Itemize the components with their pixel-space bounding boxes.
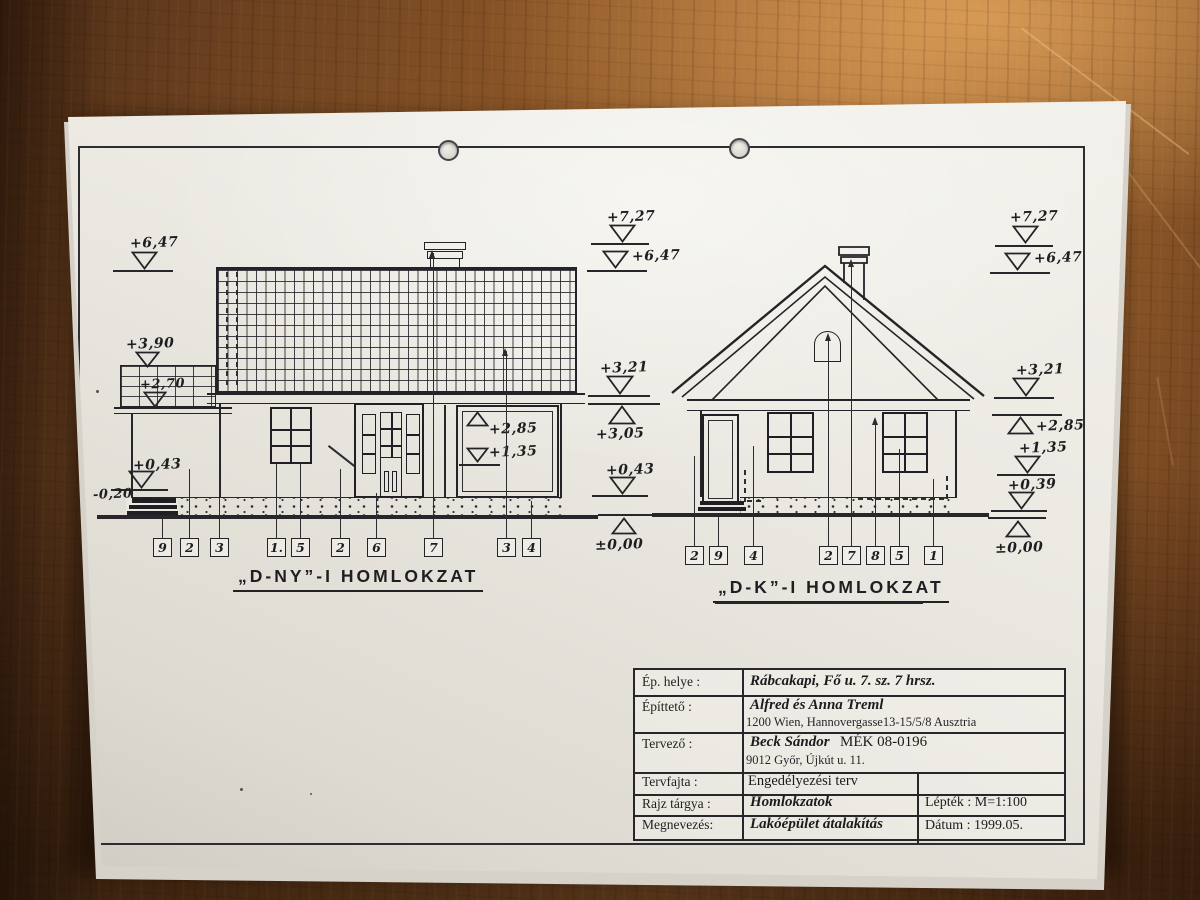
hidden-edge-line: [226, 272, 228, 389]
level-triangle-down-icon: [1012, 377, 1040, 397]
component-tag: 9: [153, 538, 172, 557]
title-underline: [715, 602, 923, 604]
component-tag: 7: [842, 546, 861, 565]
component-tag: 1.: [267, 538, 286, 557]
title-block-date: Dátum : 1999.05.: [925, 818, 1023, 834]
level-triangle-up-icon: [1007, 416, 1034, 435]
door-glazing-bar: [381, 457, 401, 459]
arrowhead: [825, 330, 831, 341]
level-value: +2,85: [489, 420, 538, 438]
sidelight-rail: [363, 434, 375, 436]
door-sidelight: [362, 414, 376, 474]
tag-number: 7: [847, 548, 856, 563]
level-line: [997, 474, 1055, 476]
title-block-registration: MÉK 08-0196: [840, 734, 927, 751]
tag-number: 5: [296, 540, 305, 555]
door-panel: [384, 471, 389, 492]
level-line: [588, 395, 650, 397]
level-triangle-up-icon: [466, 411, 489, 427]
door-glazing-bar: [381, 428, 401, 430]
title-block-value: Alfred és Anna Treml: [750, 697, 883, 714]
ground-line: [652, 513, 989, 517]
wall-joint-line: [444, 405, 446, 498]
step: [132, 499, 176, 503]
paper-speck: [240, 788, 243, 791]
level-triangle-down-icon: [609, 224, 636, 243]
punch-hole: [729, 138, 750, 159]
title-block-label: Tervfajta :: [642, 774, 698, 790]
title-block-address: 9012 Győr, Újkút u. 11.: [746, 753, 865, 768]
title-block-value: Engedélyezési terv: [748, 773, 858, 790]
level-line: [991, 510, 1047, 512]
entrance-door-assembly: [354, 403, 424, 498]
level-value: +6,47: [632, 247, 681, 265]
title-block-scale: Lépték : M=1:100: [925, 795, 1027, 811]
level-value: +2,85: [1036, 417, 1085, 435]
component-tag: 5: [890, 546, 909, 565]
left-elevation-tiled-roof: [216, 267, 577, 393]
tag-number: 1: [929, 548, 938, 563]
level-triangle-up-icon: [611, 517, 637, 535]
window-mullion: [904, 414, 906, 471]
tag-number: 2: [185, 540, 194, 555]
right-elevation-title: „D-K”-I HOMLOKZAT: [713, 577, 949, 603]
window-rail: [769, 453, 812, 455]
level-line: [592, 495, 648, 497]
paper-speck: [310, 793, 312, 795]
tag-number: 2: [824, 548, 833, 563]
window-mullion: [790, 414, 792, 471]
door-inner-frame: [708, 420, 733, 499]
sidelight-rail: [407, 453, 419, 455]
component-tag: 1: [924, 546, 943, 565]
step: [700, 501, 744, 505]
level-line: [994, 397, 1054, 399]
photo-of-architectural-drawing: 8: [0, 0, 1200, 900]
level-line: [598, 514, 652, 516]
arrowhead: [429, 247, 435, 258]
sidelight-rail: [407, 434, 419, 436]
component-tag: 9: [709, 546, 728, 565]
level-value: ±0,00: [995, 539, 1044, 557]
tag-number: 9: [158, 540, 167, 555]
title-block-label: Építtető :: [642, 699, 692, 715]
component-tag: 3: [210, 538, 229, 557]
tag-number: 4: [527, 540, 536, 555]
component-tag: 5: [291, 538, 310, 557]
level-line: [587, 270, 647, 272]
component-tag: 2: [685, 546, 704, 565]
sidelight-rail: [363, 453, 375, 455]
tag-number: 7: [429, 540, 438, 555]
tag-number: 2: [690, 548, 699, 563]
level-triangle-down-icon: [609, 476, 636, 495]
title-block-label: Ép. helye :: [642, 674, 700, 690]
tag-number: 6: [372, 540, 381, 555]
door-glazing-bar: [381, 445, 401, 447]
arrowhead: [502, 345, 508, 356]
component-tag: 2: [180, 538, 199, 557]
level-line: [995, 245, 1053, 247]
level-triangle-down-icon: [466, 447, 489, 463]
title-block-address: 1200 Wien, Hannovergasse13-15/5/8 Ausztr…: [746, 715, 976, 730]
title-block-value: Homlokzatok: [750, 794, 833, 811]
window: [882, 412, 928, 473]
level-triangle-down-icon: [1008, 491, 1035, 510]
component-tag: 8: [866, 546, 885, 565]
level-triangle-down-icon: [1012, 225, 1039, 244]
level-value: +7,27: [1010, 208, 1059, 226]
door-panel: [392, 471, 397, 492]
tag-number: 3: [215, 540, 224, 555]
level-value: +3,05: [596, 425, 645, 443]
component-tag: 3: [497, 538, 516, 557]
title-block-value: Beck Sándor: [750, 734, 830, 751]
drawing-sheet: 8: [0, 0, 1200, 900]
window-rail: [272, 445, 310, 447]
door-glazing-bar: [391, 413, 393, 457]
window-rail: [769, 436, 812, 438]
level-line: [591, 243, 649, 245]
level-triangle-down-icon: [1014, 455, 1041, 474]
level-line: [459, 464, 500, 466]
level-value: +1,35: [489, 443, 538, 461]
tag-number: 1.: [270, 540, 283, 555]
title-block-label: Rajz tárgya :: [642, 796, 711, 812]
tag-number: 9: [714, 548, 723, 563]
annex-eave-band: [114, 407, 232, 414]
step: [129, 505, 177, 509]
window: [270, 407, 312, 464]
door-sidelight: [406, 414, 420, 474]
level-triangle-down-icon: [143, 391, 167, 408]
level-line: [988, 517, 1046, 519]
hidden-edge-line: [236, 272, 238, 389]
title-block-label: Megnevezés:: [642, 817, 713, 833]
level-triangle-down-icon: [131, 251, 158, 270]
level-value: +6,47: [130, 234, 179, 252]
left-elevation-title: „D-NY”-I HOMLOKZAT: [233, 566, 483, 592]
title-block-label: Tervező :: [642, 736, 692, 752]
level-triangle-down-icon: [602, 250, 629, 269]
arrowhead: [848, 256, 854, 267]
component-tag: 4: [522, 538, 541, 557]
level-triangle-up-icon: [1005, 520, 1031, 538]
arrowhead: [872, 414, 878, 425]
level-triangle-down-icon: [1004, 252, 1031, 271]
tag-number: 3: [502, 540, 511, 555]
title-block: Ép. helye : Rábcakapi, Fő u. 7. sz. 7 hr…: [633, 668, 1066, 841]
component-tag: 7: [424, 538, 443, 557]
level-triangle-up-icon: [608, 405, 636, 425]
tag-number: 8: [871, 548, 880, 563]
level-triangle-down-icon: [606, 375, 634, 395]
side-door: [702, 414, 739, 505]
window-mullion: [290, 409, 292, 462]
window-rail: [272, 429, 310, 431]
level-triangle-down-icon: [135, 351, 160, 368]
door-leaf: [380, 412, 402, 498]
tag-number: 5: [895, 548, 904, 563]
left-elevation-foundation: [131, 497, 562, 515]
window-rail: [884, 436, 926, 438]
tag-number: 4: [749, 548, 758, 563]
level-value: -0,20: [93, 486, 133, 502]
component-tag: 2: [331, 538, 350, 557]
component-tag: 6: [367, 538, 386, 557]
level-line: [990, 272, 1050, 274]
chimney-body: [430, 259, 460, 269]
level-value: +6,47: [1034, 249, 1083, 267]
title-block-value: Rábcakapi, Fő u. 7. sz. 7 hrsz.: [750, 673, 935, 690]
ground-line: [97, 515, 598, 519]
table-line: [742, 670, 744, 839]
window: [767, 412, 814, 473]
tag-number: 2: [336, 540, 345, 555]
component-tag: 4: [744, 546, 763, 565]
step: [698, 507, 746, 511]
title-block-value: Lakóépület átalakítás: [750, 816, 883, 833]
paper-speck: [96, 390, 99, 393]
window-rail: [884, 453, 926, 455]
punch-hole: [438, 140, 459, 161]
level-value: ±0,00: [595, 536, 644, 554]
level-line: [113, 270, 173, 272]
component-tag: 2: [819, 546, 838, 565]
table-line: [917, 772, 919, 843]
